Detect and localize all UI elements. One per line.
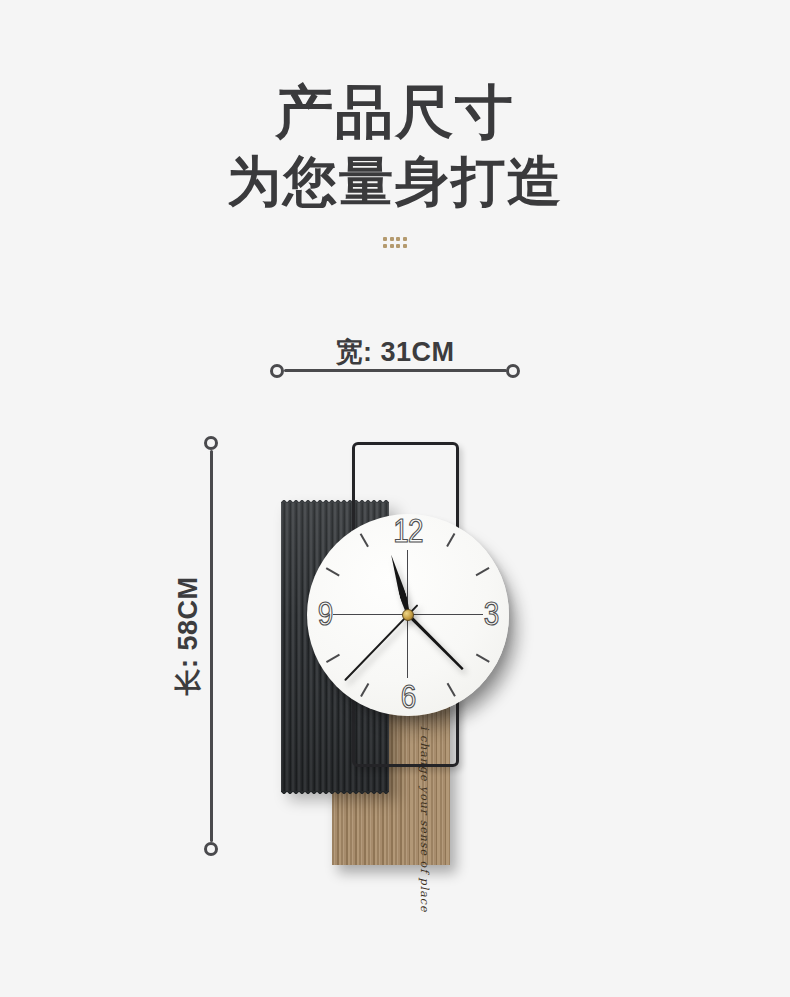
divider-dot (383, 237, 387, 241)
height-dimension-label: 长: 58CM (170, 566, 202, 706)
width-line-right-endpoint-icon (506, 364, 520, 378)
clock-center-cap-icon (402, 609, 414, 621)
title-line-2: 为您量身打造 (0, 153, 790, 210)
width-dimension-line (284, 369, 507, 372)
divider-dot (390, 244, 394, 248)
width-dimension-label: 宽: 31CM (277, 334, 513, 370)
divider-dot (390, 237, 394, 241)
divider-dot (396, 244, 400, 248)
divider-dot (396, 237, 400, 241)
divider-dot (403, 244, 407, 248)
product-dimensions-page: 产品尺寸 为您量身打造 宽: 31CM 长: 58CM i change you… (0, 0, 790, 997)
divider-dot (383, 244, 387, 248)
height-line-top-endpoint-icon (204, 436, 218, 450)
page-title: 产品尺寸 为您量身打造 (0, 82, 790, 210)
height-line-bottom-endpoint-icon (204, 842, 218, 856)
height-dimension-line (210, 450, 213, 842)
width-line-left-endpoint-icon (270, 364, 284, 378)
divider-dot (403, 237, 407, 241)
hour-hand (387, 553, 411, 615)
clock-face: 12369 (307, 514, 509, 716)
clock-hands (307, 514, 509, 716)
title-line-1: 产品尺寸 (0, 82, 790, 143)
divider-dots-icon (383, 237, 408, 248)
minute-hand (406, 613, 464, 671)
